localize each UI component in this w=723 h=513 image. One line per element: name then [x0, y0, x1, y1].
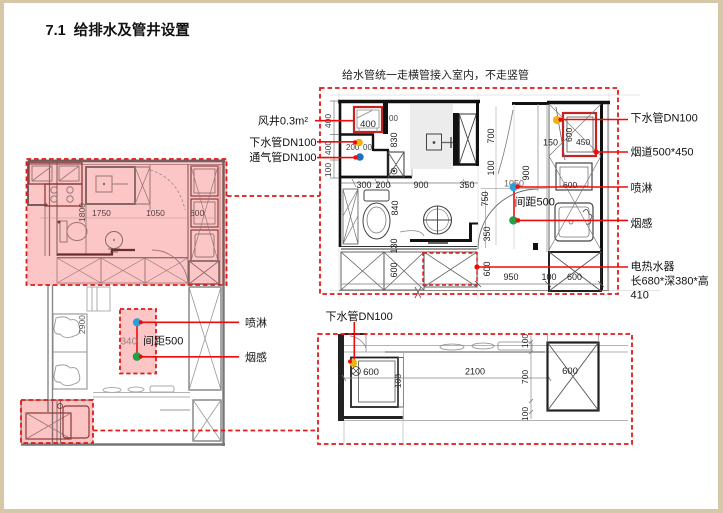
svg-text:200: 200 [375, 180, 390, 190]
svg-text:烟感: 烟感 [245, 350, 267, 364]
svg-text:830: 830 [389, 132, 399, 147]
svg-text:130: 130 [389, 238, 399, 253]
svg-text:400: 400 [360, 119, 376, 130]
svg-text:600: 600 [562, 366, 578, 377]
svg-text:840: 840 [390, 200, 400, 215]
svg-text:750: 750 [480, 191, 490, 206]
svg-text:烟感: 烟感 [631, 216, 653, 230]
svg-text:600: 600 [389, 262, 399, 277]
svg-text:410: 410 [631, 290, 649, 302]
svg-text:100: 100 [393, 374, 403, 388]
svg-text:340: 340 [121, 337, 138, 348]
svg-text:烟道500*450: 烟道500*450 [631, 145, 694, 159]
svg-text:00: 00 [389, 114, 398, 123]
svg-text:风井0.3m²: 风井0.3m² [258, 113, 308, 127]
svg-text:600: 600 [482, 261, 492, 276]
svg-text:下水管DN100: 下水管DN100 [326, 309, 393, 323]
svg-text:600: 600 [363, 367, 379, 378]
svg-text:喷淋: 喷淋 [631, 182, 653, 195]
svg-text:150: 150 [543, 138, 558, 148]
svg-text:950: 950 [503, 272, 518, 282]
svg-text:100: 100 [520, 407, 530, 421]
svg-text:400: 400 [323, 141, 333, 155]
svg-text:100: 100 [486, 160, 496, 175]
svg-text:100: 100 [520, 334, 530, 348]
svg-text:间距500: 间距500 [515, 196, 555, 209]
svg-text:喷淋: 喷淋 [245, 317, 267, 330]
svg-text:100: 100 [323, 163, 333, 177]
svg-text:2100: 2100 [465, 367, 485, 377]
svg-text:100: 100 [541, 272, 556, 282]
svg-text:350: 350 [459, 180, 474, 190]
svg-text:电热水器: 电热水器 [631, 260, 675, 273]
svg-text:间距500: 间距500 [143, 335, 183, 348]
svg-text:600: 600 [567, 272, 582, 282]
svg-text:00: 00 [363, 143, 372, 152]
svg-text:350: 350 [482, 226, 492, 241]
svg-text:300: 300 [356, 180, 371, 190]
svg-text:7.1 给排水及管井设置: 7.1 给排水及管井设置 [46, 21, 190, 39]
svg-text:下水管DN100: 下水管DN100 [631, 111, 698, 125]
svg-text:下水管DN100: 下水管DN100 [249, 135, 316, 149]
svg-text:900: 900 [413, 180, 428, 190]
svg-text:给水管统一走横管接入室内，不走竖管: 给水管统一走横管接入室内，不走竖管 [342, 68, 529, 82]
svg-text:通气管DN100: 通气管DN100 [249, 150, 316, 164]
svg-text:长680*深380*高: 长680*深380*高 [631, 274, 709, 288]
svg-text:700: 700 [486, 128, 496, 143]
svg-text:2900: 2900 [77, 315, 87, 334]
svg-text:700: 700 [520, 370, 530, 384]
